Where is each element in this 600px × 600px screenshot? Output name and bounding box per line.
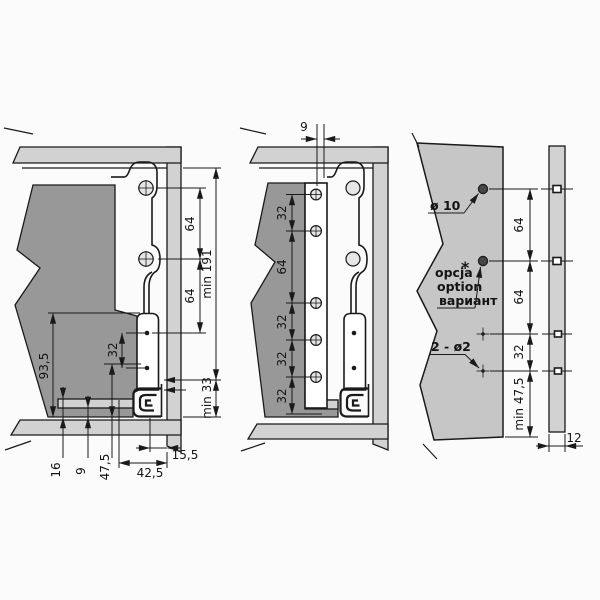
screw [311, 372, 322, 383]
cabinet-front-panel [373, 147, 388, 450]
right-view-hole-pattern: ø 10 * opcja option вариант 2 - ø2 64 64… [412, 133, 538, 459]
dim-12-thickness: 12 [566, 431, 581, 445]
dim-64-top: 64 [183, 216, 197, 231]
dim-47-5: 47,5 [98, 454, 112, 481]
front-bracket [137, 314, 159, 391]
cabinet-front-panel [167, 147, 181, 452]
cabinet-top-panel [250, 147, 388, 163]
left-view-section: 64 64 min 191 min 33 93,5 32 16 9 47,5 4… [4, 128, 221, 480]
screw [311, 298, 322, 309]
break-line [241, 443, 265, 451]
label-dia-10: ø 10 [430, 198, 461, 213]
dim-min-191: min 191 [200, 249, 214, 298]
dim-42-5: 42,5 [137, 466, 164, 480]
cabinet-bottom-panel [11, 420, 181, 435]
bottom-rail-hook-inner [146, 401, 153, 406]
mount-hole-mid [346, 252, 360, 266]
drawer-bottom-board [58, 399, 133, 408]
middle-view-section: 9 32 64 32 32 32 [240, 120, 388, 451]
dim-15-5: 15,5 [172, 448, 199, 462]
break-line [240, 128, 266, 134]
bottom-rail-hook-outer [341, 389, 370, 417]
dim-32: 32 [512, 344, 526, 359]
dim-min-47-5: min 47,5 [512, 377, 526, 430]
label-wariant: вариант [439, 293, 498, 308]
technical-drawing: 64 64 min 191 min 33 93,5 32 16 9 47,5 4… [0, 0, 600, 600]
break-line [423, 444, 437, 459]
bracket-rivet-upper [352, 331, 357, 336]
hole-option [478, 256, 487, 265]
dim-32-row5: 32 [275, 388, 289, 403]
edge-view: 12 [536, 146, 583, 452]
drawing-canvas: 64 64 min 191 min 33 93,5 32 16 9 47,5 4… [0, 0, 600, 600]
label-option: option [437, 279, 482, 294]
dim-64-top: 64 [512, 217, 526, 232]
screw [311, 226, 322, 237]
edge-view-dimensions: 12 [536, 431, 583, 452]
mount-hole-top [346, 181, 360, 195]
screw [311, 189, 322, 200]
label-opcja: opcja [435, 265, 473, 280]
edge-hole-top [553, 186, 561, 193]
dim-32-row3: 32 [275, 314, 289, 329]
cabinet-bottom-panel [248, 424, 388, 439]
edge-hole-low1 [555, 331, 562, 337]
edge-hole-low2 [555, 368, 562, 374]
hole-dia10 [478, 184, 487, 193]
break-line [412, 133, 419, 147]
dim-64-row2: 64 [275, 259, 289, 274]
dim-32: 32 [106, 342, 120, 357]
dim-93-5: 93,5 [37, 353, 51, 380]
front-bracket [344, 314, 366, 391]
label-2-dia2: 2 - ø2 [431, 339, 471, 354]
cabinet-top-panel [13, 147, 181, 163]
bottom-rail-hook-mid [140, 395, 157, 411]
dim-9: 9 [74, 467, 88, 475]
dim-32-row1: 32 [275, 205, 289, 220]
edge-hole-mid [553, 258, 561, 265]
dim-min-33: min 33 [200, 377, 214, 419]
dim-32-row4: 32 [275, 351, 289, 366]
bottom-rail-hook-outer [134, 389, 163, 417]
screw [311, 335, 322, 346]
break-line [4, 128, 33, 134]
dim-64-mid: 64 [183, 288, 197, 303]
drawer-side-wood-section [15, 185, 139, 417]
bottom-rail-hook-mid [347, 395, 364, 411]
bottom-rail-hook-inner [353, 401, 360, 406]
break-line [5, 441, 31, 450]
bracket-rivet-lower [352, 366, 357, 371]
dim-16: 16 [49, 462, 63, 477]
dim-9-offset: 9 [300, 120, 308, 134]
dim-64-mid: 64 [512, 289, 526, 304]
